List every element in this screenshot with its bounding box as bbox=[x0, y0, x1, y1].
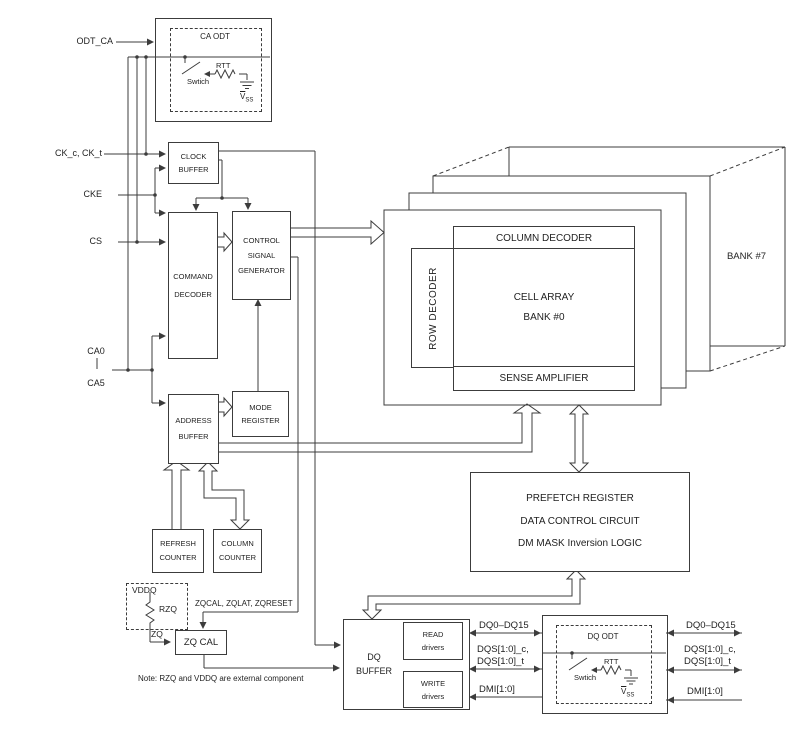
dqs-t-outer-label: DQS[1:0]_t bbox=[684, 656, 731, 667]
ca-odt-rtt-label: RTT bbox=[216, 61, 230, 70]
prefetch-block: PREFETCH REGISTER DATA CONTROL CIRCUIT D… bbox=[470, 472, 690, 572]
ca5-label: CA5 bbox=[80, 378, 112, 388]
address-buffer-line1: ADDRESS bbox=[175, 413, 211, 429]
cke-label: CKE bbox=[80, 189, 102, 199]
mode-register-line1: MODE bbox=[249, 401, 272, 414]
rzq-label: RZQ bbox=[159, 604, 177, 614]
cell-array-line1: CELL ARRAY bbox=[514, 288, 575, 308]
refresh-counter-line2: COUNTER bbox=[159, 551, 196, 565]
mode-register-line2: REGISTER bbox=[241, 414, 279, 427]
ca-odt-vss-label: VSS bbox=[240, 92, 253, 104]
csg-line1: CONTROL bbox=[243, 233, 280, 248]
ca-odt-title: CA ODT bbox=[170, 32, 260, 41]
sense-amplifier-strip: SENSE AMPLIFIER bbox=[453, 366, 635, 391]
prefetch-line2: DATA CONTROL CIRCUIT bbox=[520, 511, 639, 534]
dram-block-diagram: ODT_CA CK_c, CK_t CKE CS CA0 CA5 CA ODT … bbox=[0, 0, 807, 741]
vss-sub: SS bbox=[626, 693, 634, 699]
dq-odt-rtt-label: RTT bbox=[604, 657, 618, 666]
note-text: Note: RZQ and VDDQ are external componen… bbox=[138, 674, 303, 683]
dq-inner-label: DQ0–DQ15 bbox=[479, 620, 529, 631]
cs-label: CS bbox=[86, 236, 102, 246]
column-counter-block: COLUMN COUNTER bbox=[213, 529, 262, 573]
command-decoder-block: COMMAND DECODER bbox=[168, 212, 218, 359]
read-drivers-line1: READ bbox=[423, 628, 444, 641]
bank7-label: BANK #7 bbox=[710, 251, 783, 262]
zq-commands-label: ZQCAL, ZQLAT, ZQRESET bbox=[195, 599, 293, 608]
vddq-label: VDDQ bbox=[132, 585, 157, 595]
clock-buffer-line1: CLOCK bbox=[181, 150, 207, 163]
address-buffer-block: ADDRESS BUFFER bbox=[168, 394, 219, 464]
row-decoder-strip: ROW DECODER bbox=[411, 248, 455, 368]
read-drivers-block: READ drivers bbox=[403, 622, 463, 660]
odt-ca-label: ODT_CA bbox=[61, 36, 113, 46]
prefetch-line1: PREFETCH REGISTER bbox=[526, 488, 634, 511]
command-decoder-line2: DECODER bbox=[174, 286, 212, 304]
zq-label: ZQ bbox=[151, 629, 163, 639]
write-drivers-line1: WRITE bbox=[421, 677, 445, 690]
column-counter-line1: COLUMN bbox=[221, 537, 254, 551]
zq-cal-line1: ZQ CAL bbox=[184, 637, 218, 648]
cell-array-line2: BANK #0 bbox=[523, 308, 564, 328]
write-drivers-line2: drivers bbox=[422, 690, 445, 703]
refresh-counter-block: REFRESH COUNTER bbox=[152, 529, 204, 573]
prefetch-line3: DM MASK Inversion LOGIC bbox=[518, 533, 642, 556]
clock-buffer-block: CLOCK BUFFER bbox=[168, 142, 219, 184]
sense-amplifier-label: SENSE AMPLIFIER bbox=[500, 373, 589, 384]
address-buffer-line2: BUFFER bbox=[179, 429, 209, 445]
read-drivers-line2: drivers bbox=[422, 641, 445, 654]
ca0-label: CA0 bbox=[80, 346, 112, 356]
dmi-inner-label: DMI[1:0] bbox=[479, 684, 515, 695]
write-drivers-block: WRITE drivers bbox=[403, 671, 463, 708]
refresh-counter-line1: REFRESH bbox=[160, 537, 196, 551]
zq-cal-block: ZQ CAL bbox=[175, 630, 227, 655]
csg-line3: GENERATOR bbox=[238, 263, 285, 278]
column-counter-line2: COUNTER bbox=[219, 551, 256, 565]
dq-odt-title: DQ ODT bbox=[556, 632, 650, 641]
cell-array-block: CELL ARRAY BANK #0 bbox=[453, 248, 635, 368]
vss-sub: SS bbox=[245, 98, 253, 104]
ck-label: CK_c, CK_t bbox=[55, 148, 102, 158]
column-decoder-label: COLUMN DECODER bbox=[496, 233, 592, 244]
control-signal-generator-block: CONTROL SIGNAL GENERATOR bbox=[232, 211, 291, 300]
dq-odt-vss-label: VSS bbox=[621, 687, 634, 699]
dq-buffer-line2: BUFFER bbox=[356, 664, 392, 678]
command-decoder-line1: COMMAND bbox=[173, 268, 213, 286]
dqs-c-inner-label: DQS[1:0]_c, bbox=[477, 644, 529, 655]
dmi-outer-label: DMI[1:0] bbox=[687, 686, 723, 697]
mode-register-block: MODE REGISTER bbox=[232, 391, 289, 437]
csg-line2: SIGNAL bbox=[248, 248, 276, 263]
ca-odt-switch-label: Swtich bbox=[187, 77, 209, 86]
dq-outer-label: DQ0–DQ15 bbox=[686, 620, 736, 631]
clock-buffer-line2: BUFFER bbox=[179, 163, 209, 176]
column-decoder-strip: COLUMN DECODER bbox=[453, 226, 635, 250]
dqs-c-outer-label: DQS[1:0]_c, bbox=[684, 644, 736, 655]
dq-buffer-line1: DQ bbox=[367, 650, 381, 664]
row-decoder-label: ROW DECODER bbox=[428, 267, 439, 350]
dq-buffer-label: DQ BUFFER bbox=[343, 619, 405, 708]
dq-odt-switch-label: Swtich bbox=[574, 673, 596, 682]
dqs-t-inner-label: DQS[1:0]_t bbox=[477, 656, 524, 667]
